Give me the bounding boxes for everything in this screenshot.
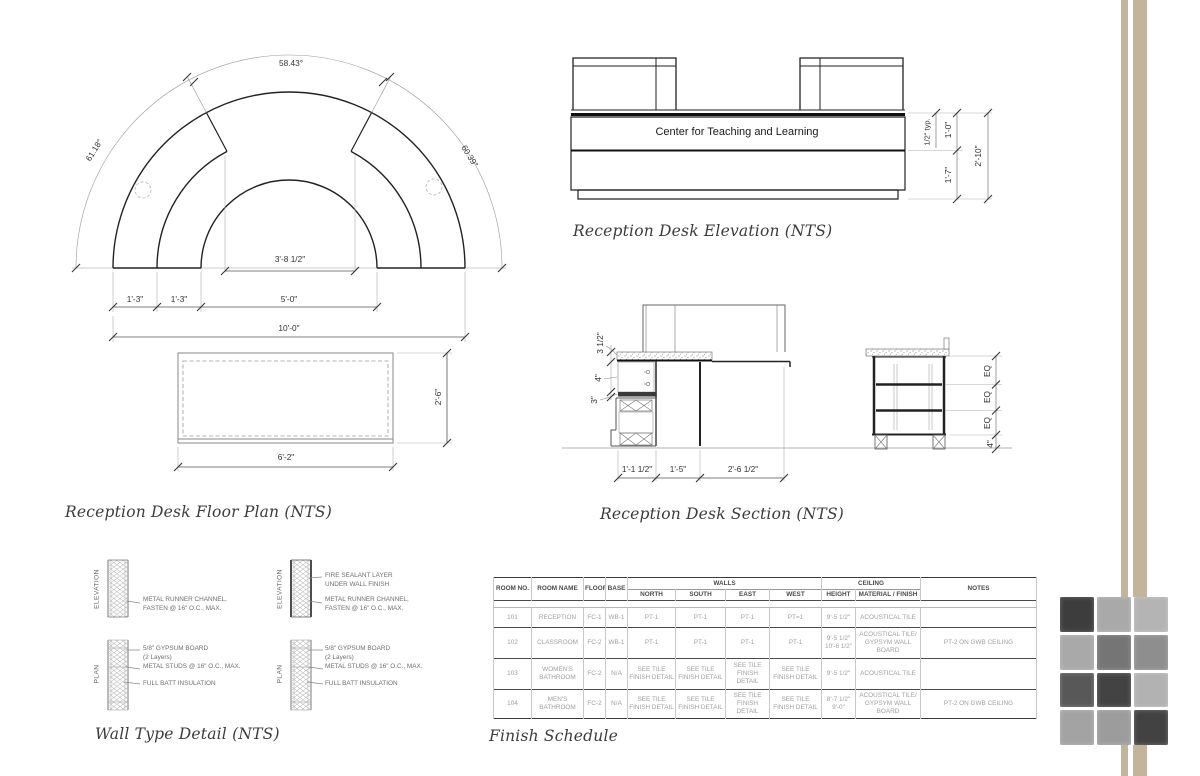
title-elevation: Reception Desk Elevation (NTS) — [573, 222, 832, 240]
note-gypsum-1: 5/8" GYPSUM BOARD (2 Layers) METAL STUDS… — [143, 645, 241, 672]
schedule-cell-east: SEE TILE FINISH DETAIL — [726, 659, 770, 690]
title-section: Reception Desk Section (NTS) — [600, 505, 844, 523]
col-base: BASE — [606, 578, 628, 601]
dim-counter-width: 6'-2" — [278, 452, 295, 462]
tile-swatch — [1134, 673, 1168, 708]
col-west: WEST — [770, 590, 822, 601]
schedule-row: 104MEN'S BATHROOMFC-2N/ASEE TILE FINISH … — [494, 690, 1037, 719]
col-ceiling: CEILING — [822, 578, 921, 590]
schedule-cell-west: PT-1 — [770, 628, 822, 659]
dim-section-knee: 1'-5" — [670, 464, 687, 474]
dim-section-cab: 1'-1 1/2" — [622, 464, 652, 474]
tile-swatch — [1097, 673, 1131, 708]
schedule-cell-base: N/A — [606, 659, 628, 690]
schedule-row: 103WOMEN'S BATHROOMFC-2N/ASEE TILE FINIS… — [494, 659, 1037, 690]
section-dim-ticks — [607, 348, 1000, 482]
dim-sign-band: 1'-0" — [943, 122, 953, 139]
schedule-cell-notes: PT-2 ON GWB CEILING — [921, 690, 1037, 719]
dim-seg2: 1'-3" — [171, 294, 188, 304]
col-notes: NOTES — [921, 578, 1037, 601]
schedule-cell-west: SEE TILE FINISH DETAIL — [770, 690, 822, 719]
wall-elevation-label-1: ELEVATION — [94, 569, 101, 609]
finish-schedule-table: ROOM NO. ROOM NAME FLOOR BASE WALLS CEIL… — [493, 577, 1037, 719]
dim-overall-width: 10'-0" — [278, 323, 299, 333]
dim-eq-1: EQ — [982, 365, 992, 377]
tile-swatch — [1060, 635, 1094, 670]
dim-section-band: 3" — [589, 396, 599, 404]
schedule-cell-name: RECEPTION — [532, 608, 584, 628]
schedule-cell-no: 102 — [494, 628, 532, 659]
schedule-cell-north: SEE TILE FINISH DETAIL — [628, 690, 676, 719]
schedule-cell-east: PT-1 — [726, 608, 770, 628]
title-finish-schedule: Finish Schedule — [489, 727, 618, 745]
col-floor: FLOOR — [584, 578, 606, 601]
schedule-cell-south: PT-1 — [676, 608, 726, 628]
note-runner-2: METAL RUNNER CHANNEL, FASTEN @ 16" O.C.,… — [325, 596, 409, 614]
schedule-cell-height: 8'-7 1/2" 9'-0" — [822, 690, 856, 719]
schedule-cell-south: PT-1 — [676, 628, 726, 659]
schedule-row: 102CLASSROOMFC-2WB-1PT-1PT-1PT-1PT-19'-5… — [494, 628, 1037, 659]
wall-plan-label-1: PLAN — [94, 665, 101, 684]
schedule-cell-notes — [921, 659, 1037, 690]
schedule-cell-floor: FC-2 — [584, 628, 606, 659]
dim-section-front: 2'-6 1/2" — [728, 464, 758, 474]
section-drawing — [562, 305, 1012, 482]
schedule-cell-no: 104 — [494, 690, 532, 719]
note-insulation-2: FULL BATT INSULATION — [325, 680, 398, 689]
schedule-cell-east: SEE TILE FINISH DETAIL — [726, 690, 770, 719]
dim-toe-kick: 4" — [985, 440, 995, 448]
schedule-cell-no: 101 — [494, 608, 532, 628]
schedule-cell-height: 9'-5 1/2" 10'-6 1/2" — [822, 628, 856, 659]
schedule-cell-south: SEE TILE FINISH DETAIL — [676, 659, 726, 690]
col-walls: WALLS — [628, 578, 822, 590]
dim-eq-3: EQ — [982, 417, 992, 429]
tile-swatch — [1097, 635, 1131, 670]
dim-eq-2: EQ — [982, 391, 992, 403]
tile-swatch — [1060, 710, 1094, 745]
schedule-cell-material: ACOUSTICAL TILE — [856, 608, 921, 628]
schedule-cell-material: ACOUSTICAL TILE/ GYPSYM WALL BOARD — [856, 628, 921, 659]
dim-seg1: 1'-3" — [127, 294, 144, 304]
title-floor-plan: Reception Desk Floor Plan (NTS) — [65, 503, 332, 521]
col-room-no: ROOM NO. — [494, 578, 532, 601]
dim-inner-width: 3'-8 1/2" — [275, 254, 305, 264]
note-fire-sealant: FIRE SEALANT LAYER UNDER WALL FINISH — [325, 572, 393, 590]
col-north: NORTH — [628, 590, 676, 601]
schedule-cell-material: ACOUSTICAL TILE/ GYPSYM WALL BOARD — [856, 690, 921, 719]
schedule-cell-notes: PT-2 ON GWB CEILING — [921, 628, 1037, 659]
drawing-sheet: 58.43° 61.18° 60.39° 3'-8 1/2" 1'-3" 1'-… — [0, 0, 1200, 776]
dim-overall-height: 2'-10" — [973, 145, 983, 166]
note-runner-1: METAL RUNNER CHANNEL, FASTEN @ 16" O.C.,… — [143, 596, 227, 614]
title-wall-detail: Wall Type Detail (NTS) — [95, 725, 280, 743]
plan-dim-ticks — [72, 73, 506, 471]
schedule-cell-notes — [921, 608, 1037, 628]
tile-swatch — [1134, 635, 1168, 670]
schedule-cell-floor: FC-2 — [584, 690, 606, 719]
schedule-cell-floor: FC-1 — [584, 608, 606, 628]
dim-section-counter: 3 1/2" — [595, 332, 605, 353]
col-material: MATERIAL / FINISH — [856, 590, 921, 601]
schedule-cell-west: SEE TILE FINISH DETAIL — [770, 659, 822, 690]
schedule-cell-south: SEE TILE FINISH DETAIL — [676, 690, 726, 719]
dim-counter-overhang: 1/2" typ. — [923, 118, 932, 145]
tile-swatch — [1060, 673, 1094, 708]
note-gypsum-2: 5/8" GYPSUM BOARD (2 Layers) METAL STUDS… — [325, 645, 423, 672]
col-east: EAST — [726, 590, 770, 601]
dim-seg3: 5'-0" — [281, 294, 298, 304]
desk-sign-text: Center for Teaching and Learning — [655, 126, 818, 138]
schedule-row: 101RECEPTIONFC-1WB-1PT-1PT-1PT-1PT=19'-5… — [494, 608, 1037, 628]
schedule-cell-west: PT=1 — [770, 608, 822, 628]
schedule-cell-north: PT-1 — [628, 628, 676, 659]
schedule-cell-base: WB-1 — [606, 628, 628, 659]
schedule-cell-no: 103 — [494, 659, 532, 690]
schedule-cell-base: WB-1 — [606, 608, 628, 628]
schedule-cell-base: N/A — [606, 690, 628, 719]
schedule-body: 101RECEPTIONFC-1WB-1PT-1PT-1PT-1PT=19'-5… — [494, 601, 1037, 719]
col-height: HEIGHT — [822, 590, 856, 601]
elevation-dim-ticks — [932, 109, 992, 203]
tile-swatch — [1060, 597, 1094, 632]
schedule-spacer-row — [494, 601, 1037, 608]
col-south: SOUTH — [676, 590, 726, 601]
wall-elevation-label-2: ELEVATION — [277, 569, 284, 609]
schedule-cell-height: 9'-5 1/2" — [822, 659, 856, 690]
schedule-cell-north: SEE TILE FINISH DETAIL — [628, 659, 676, 690]
tile-finish-sample — [1060, 597, 1168, 745]
schedule-cell-floor: FC-2 — [584, 659, 606, 690]
note-insulation-1: FULL BATT INSULATION — [143, 680, 216, 689]
schedule-cell-name: WOMEN'S BATHROOM — [532, 659, 584, 690]
dim-body-height: 1'-7" — [943, 167, 953, 184]
dim-angle-top: 58.43° — [279, 58, 303, 68]
tile-swatch — [1134, 597, 1168, 632]
schedule-cell-height: 9'-5 1/2" — [822, 608, 856, 628]
col-room-name: ROOM NAME — [532, 578, 584, 601]
schedule-cell-east: PT-1 — [726, 628, 770, 659]
schedule-cell-north: PT-1 — [628, 608, 676, 628]
tile-swatch — [1097, 597, 1131, 632]
dim-counter-depth: 2'-6" — [433, 389, 443, 406]
schedule-cell-name: MEN'S BATHROOM — [532, 690, 584, 719]
schedule-cell-name: CLASSROOM — [532, 628, 584, 659]
tile-swatch — [1097, 710, 1131, 745]
schedule-cell-material: ACOUSTICAL TILE — [856, 659, 921, 690]
wall-plan-label-2: PLAN — [277, 665, 284, 684]
tile-swatch — [1134, 710, 1168, 745]
schedule-spacer-cell — [494, 601, 1037, 608]
dim-section-shelf: 4" — [593, 374, 603, 382]
